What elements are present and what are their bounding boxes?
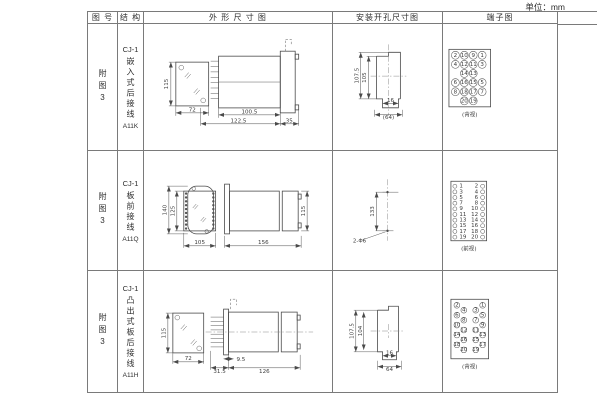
figure-cell-row1: 附图3 bbox=[88, 24, 118, 151]
svg-text:20: 20 bbox=[460, 347, 468, 353]
model-code: A11H bbox=[123, 372, 139, 379]
svg-text:9: 9 bbox=[481, 322, 485, 328]
svg-text:5: 5 bbox=[481, 312, 485, 318]
svg-text:2: 2 bbox=[455, 302, 459, 308]
model-label: CJ-1 bbox=[123, 284, 139, 293]
dim-label: 107.5 bbox=[349, 322, 355, 338]
figure-cell-row2: 附图3 bbox=[88, 151, 118, 271]
terminal-cell-row1: 2109141211314136161558181772019 (背视) bbox=[443, 24, 558, 151]
svg-text:8: 8 bbox=[454, 89, 458, 95]
figure-cell-row3: 附图3 bbox=[88, 271, 118, 393]
terminal-cell-row2: 1234567891011121314151617181920 (前视) bbox=[443, 151, 558, 271]
col-header-structure: 结 构 bbox=[118, 12, 144, 24]
col-header-figure: 图 号 bbox=[88, 12, 118, 24]
col-header-install: 安装开孔尺寸图 bbox=[333, 12, 443, 24]
structure-name: 凸出式板后接线 bbox=[125, 296, 136, 370]
dim-label: 140 bbox=[162, 204, 168, 215]
svg-text:8: 8 bbox=[462, 317, 466, 323]
structure-name: 嵌入式后接线 bbox=[125, 57, 136, 120]
document-page: 单位：mm 图 号 结 构 外 形 尺 寸 图 安装开孔尺寸图 端子图 附图3 … bbox=[0, 0, 600, 400]
dim-label: 72 bbox=[189, 107, 196, 113]
dim-label: 31.5 bbox=[213, 368, 226, 374]
svg-text:17: 17 bbox=[470, 89, 478, 95]
terminal-grid: 2431687510121191416151318201917 bbox=[453, 302, 486, 353]
terminal-cell-row3: 2431687510121191416151318201917 (背视) bbox=[443, 271, 558, 393]
install-cell-row2: 133 2-Φ6 bbox=[333, 151, 443, 271]
terminal-caption: (前视) bbox=[461, 244, 476, 252]
svg-text:6: 6 bbox=[454, 80, 458, 86]
dim-label: 126 bbox=[259, 368, 270, 374]
outline-cell-row3: 115 72 9.5 31.5 126 bbox=[144, 271, 333, 393]
dim-label: 9.5 bbox=[237, 356, 246, 362]
svg-text:14: 14 bbox=[461, 71, 469, 77]
dim-label: 64 bbox=[386, 367, 394, 373]
svg-text:20: 20 bbox=[461, 98, 469, 104]
dim-label: 16 bbox=[387, 97, 395, 103]
svg-text:19: 19 bbox=[459, 234, 467, 240]
dim-label: 105 bbox=[362, 71, 368, 82]
model-code: A11Q bbox=[122, 236, 138, 243]
terminal-caption: (背视) bbox=[462, 110, 477, 118]
svg-text:12: 12 bbox=[461, 61, 468, 67]
dim-label: 16 bbox=[386, 350, 394, 356]
svg-text:2: 2 bbox=[454, 52, 458, 58]
dim-label: 122.5 bbox=[231, 118, 247, 124]
dim-label: 115 bbox=[301, 205, 307, 216]
install-drawing-a11q: 133 2-Φ6 bbox=[333, 151, 442, 271]
model-label: CJ-1 bbox=[123, 45, 139, 54]
svg-text:6: 6 bbox=[455, 312, 459, 318]
svg-text:16: 16 bbox=[461, 80, 469, 86]
dim-label: 35 bbox=[286, 118, 294, 124]
dim-label: 105 bbox=[194, 239, 205, 245]
outline-drawing-a11h: 115 72 9.5 31.5 126 bbox=[144, 271, 332, 393]
dim-label: 133 bbox=[370, 205, 376, 216]
dim-label: 125 bbox=[170, 205, 176, 216]
terminal-grid: 1234567891011121314151617181920 bbox=[453, 183, 485, 240]
outline-drawing-a11k: 115 72 100.5 122.5 35 bbox=[144, 24, 332, 151]
model-code: A11K bbox=[123, 123, 138, 130]
install-drawing-a11h: 107.5 104 16 64 bbox=[333, 271, 442, 393]
svg-text:18: 18 bbox=[461, 89, 469, 95]
dim-label: 156 bbox=[258, 239, 269, 245]
svg-text:11: 11 bbox=[470, 61, 478, 67]
svg-text:17: 17 bbox=[479, 342, 487, 348]
dim-label: 72 bbox=[185, 356, 192, 362]
svg-text:3: 3 bbox=[480, 61, 484, 67]
outline-cell-row2: 140 125 105 115 156 bbox=[144, 151, 333, 271]
svg-text:19: 19 bbox=[470, 98, 478, 104]
figure-number: 附图3 bbox=[97, 192, 108, 229]
svg-text:15: 15 bbox=[470, 80, 478, 86]
svg-text:4: 4 bbox=[454, 61, 458, 67]
structure-cell-row3: CJ-1 凸出式板后接线 A11H bbox=[118, 271, 144, 393]
terminal-diagram-a11q: 1234567891011121314151617181920 (前视) bbox=[443, 151, 557, 271]
dim-label: 104 bbox=[358, 325, 364, 336]
dim-label: 100.5 bbox=[241, 109, 257, 115]
outline-cell-row1: 115 72 100.5 122.5 35 bbox=[144, 24, 333, 151]
terminal-diagram-a11h: 2431687510121191416151318201917 (背视) bbox=[443, 271, 557, 393]
col-header-outline: 外 形 尺 寸 图 bbox=[144, 12, 333, 24]
svg-text:1: 1 bbox=[481, 302, 485, 308]
dim-label: 107.5 bbox=[354, 67, 360, 83]
svg-text:4: 4 bbox=[462, 307, 466, 313]
terminal-caption: (背视) bbox=[462, 362, 477, 370]
svg-text:7: 7 bbox=[480, 89, 484, 95]
structure-name: 板前接线 bbox=[125, 191, 136, 233]
figure-number: 附图3 bbox=[97, 313, 108, 350]
svg-text:13: 13 bbox=[479, 332, 487, 338]
svg-text:5: 5 bbox=[480, 80, 484, 86]
svg-text:7: 7 bbox=[474, 317, 478, 323]
dim-label: (64) bbox=[383, 115, 394, 121]
spec-table: 图 号 结 构 外 形 尺 寸 图 安装开孔尺寸图 端子图 附图3 CJ-1 嵌… bbox=[87, 11, 558, 393]
svg-text:13: 13 bbox=[470, 71, 478, 77]
install-cell-row1: 107.5 105 16 (64) bbox=[333, 24, 443, 151]
top-rule-extension bbox=[557, 11, 597, 12]
figure-number: 附图3 bbox=[97, 69, 108, 106]
col-header-terminal: 端子图 bbox=[443, 12, 558, 24]
dim-label: 115 bbox=[164, 78, 170, 89]
structure-cell-row2: CJ-1 板前接线 A11Q bbox=[118, 151, 144, 271]
svg-text:12: 12 bbox=[460, 327, 467, 333]
hole-label: 2-Φ6 bbox=[353, 238, 367, 244]
svg-text:9: 9 bbox=[471, 52, 475, 58]
terminal-grid: 2109141211314136161558181772019 bbox=[451, 51, 486, 105]
outline-drawing-a11q: 140 125 105 115 156 bbox=[144, 151, 332, 271]
terminal-diagram-a11k: 2109141211314136161558181772019 (背视) bbox=[443, 24, 557, 151]
svg-text:20: 20 bbox=[471, 234, 479, 240]
install-cell-row3: 107.5 104 16 64 bbox=[333, 271, 443, 393]
svg-text:10: 10 bbox=[461, 52, 469, 58]
svg-text:16: 16 bbox=[460, 337, 468, 343]
svg-text:1: 1 bbox=[480, 52, 484, 58]
install-drawing-a11k: 107.5 105 16 (64) bbox=[333, 24, 442, 151]
svg-text:3: 3 bbox=[474, 307, 478, 313]
structure-cell-row1: CJ-1 嵌入式后接线 A11K bbox=[118, 24, 144, 151]
dim-label: 115 bbox=[161, 327, 167, 338]
model-label: CJ-1 bbox=[123, 179, 139, 188]
header-rule-extension bbox=[557, 24, 597, 25]
